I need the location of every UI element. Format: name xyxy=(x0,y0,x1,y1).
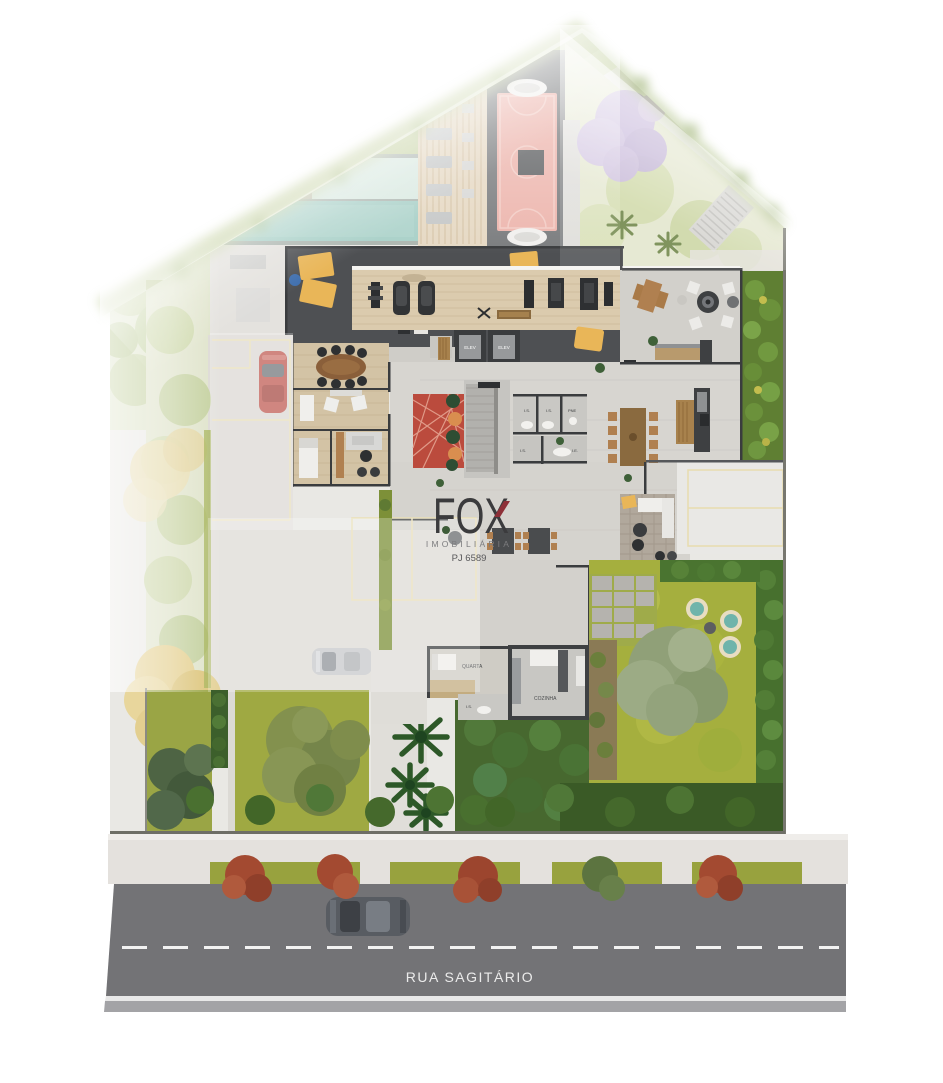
svg-text:RUA SAGITÁRIO: RUA SAGITÁRIO xyxy=(406,969,534,985)
svg-text:I.S.: I.S. xyxy=(466,704,472,709)
svg-text:COZINHA: COZINHA xyxy=(534,696,557,702)
svg-text:PNE: PNE xyxy=(568,408,577,413)
svg-text:I.S.: I.S. xyxy=(520,448,526,453)
svg-text:IMOBILIÁRIA: IMOBILIÁRIA xyxy=(426,539,512,549)
svg-text:I.S.: I.S. xyxy=(546,408,552,413)
svg-text:I.S.: I.S. xyxy=(524,408,530,413)
svg-text:PJ 6589: PJ 6589 xyxy=(452,553,487,564)
svg-text:ELEV: ELEV xyxy=(464,345,476,350)
svg-text:I.E.: I.E. xyxy=(572,448,578,453)
svg-text:ELEV: ELEV xyxy=(498,345,510,350)
